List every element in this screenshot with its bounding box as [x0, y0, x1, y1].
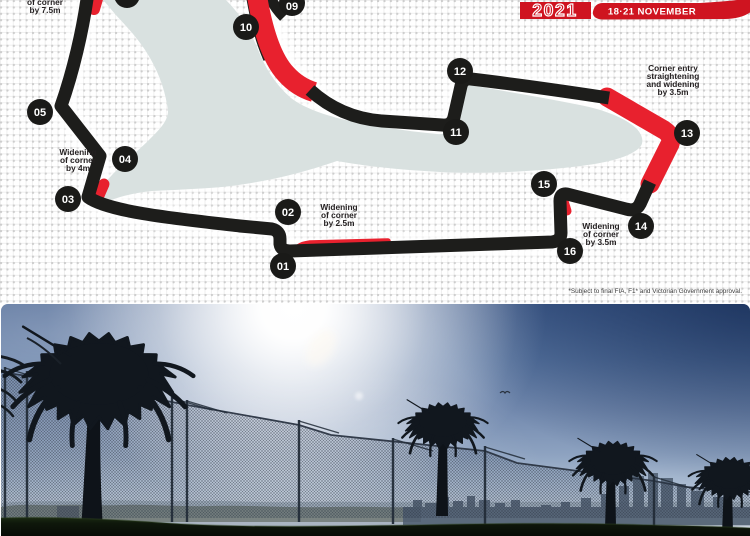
svg-text:15: 15	[538, 179, 550, 191]
svg-text:14: 14	[635, 221, 648, 233]
svg-text:*Subject to final FIA, F1* and: *Subject to final FIA, F1* and Victorian…	[568, 288, 742, 295]
svg-text:09: 09	[286, 1, 298, 13]
svg-text:16: 16	[564, 246, 576, 258]
svg-text:03: 03	[62, 194, 74, 206]
svg-text:01: 01	[277, 261, 289, 273]
svg-text:10: 10	[240, 22, 252, 34]
svg-text:05: 05	[34, 107, 46, 119]
svg-text:2021: 2021	[532, 0, 577, 20]
svg-text:04: 04	[119, 154, 132, 166]
svg-text:02: 02	[282, 207, 294, 219]
svg-text:11: 11	[450, 127, 462, 139]
svg-text:12: 12	[454, 66, 466, 78]
svg-text:13: 13	[681, 128, 693, 140]
svg-text:18·21 NOVEMBER: 18·21 NOVEMBER	[608, 7, 696, 18]
